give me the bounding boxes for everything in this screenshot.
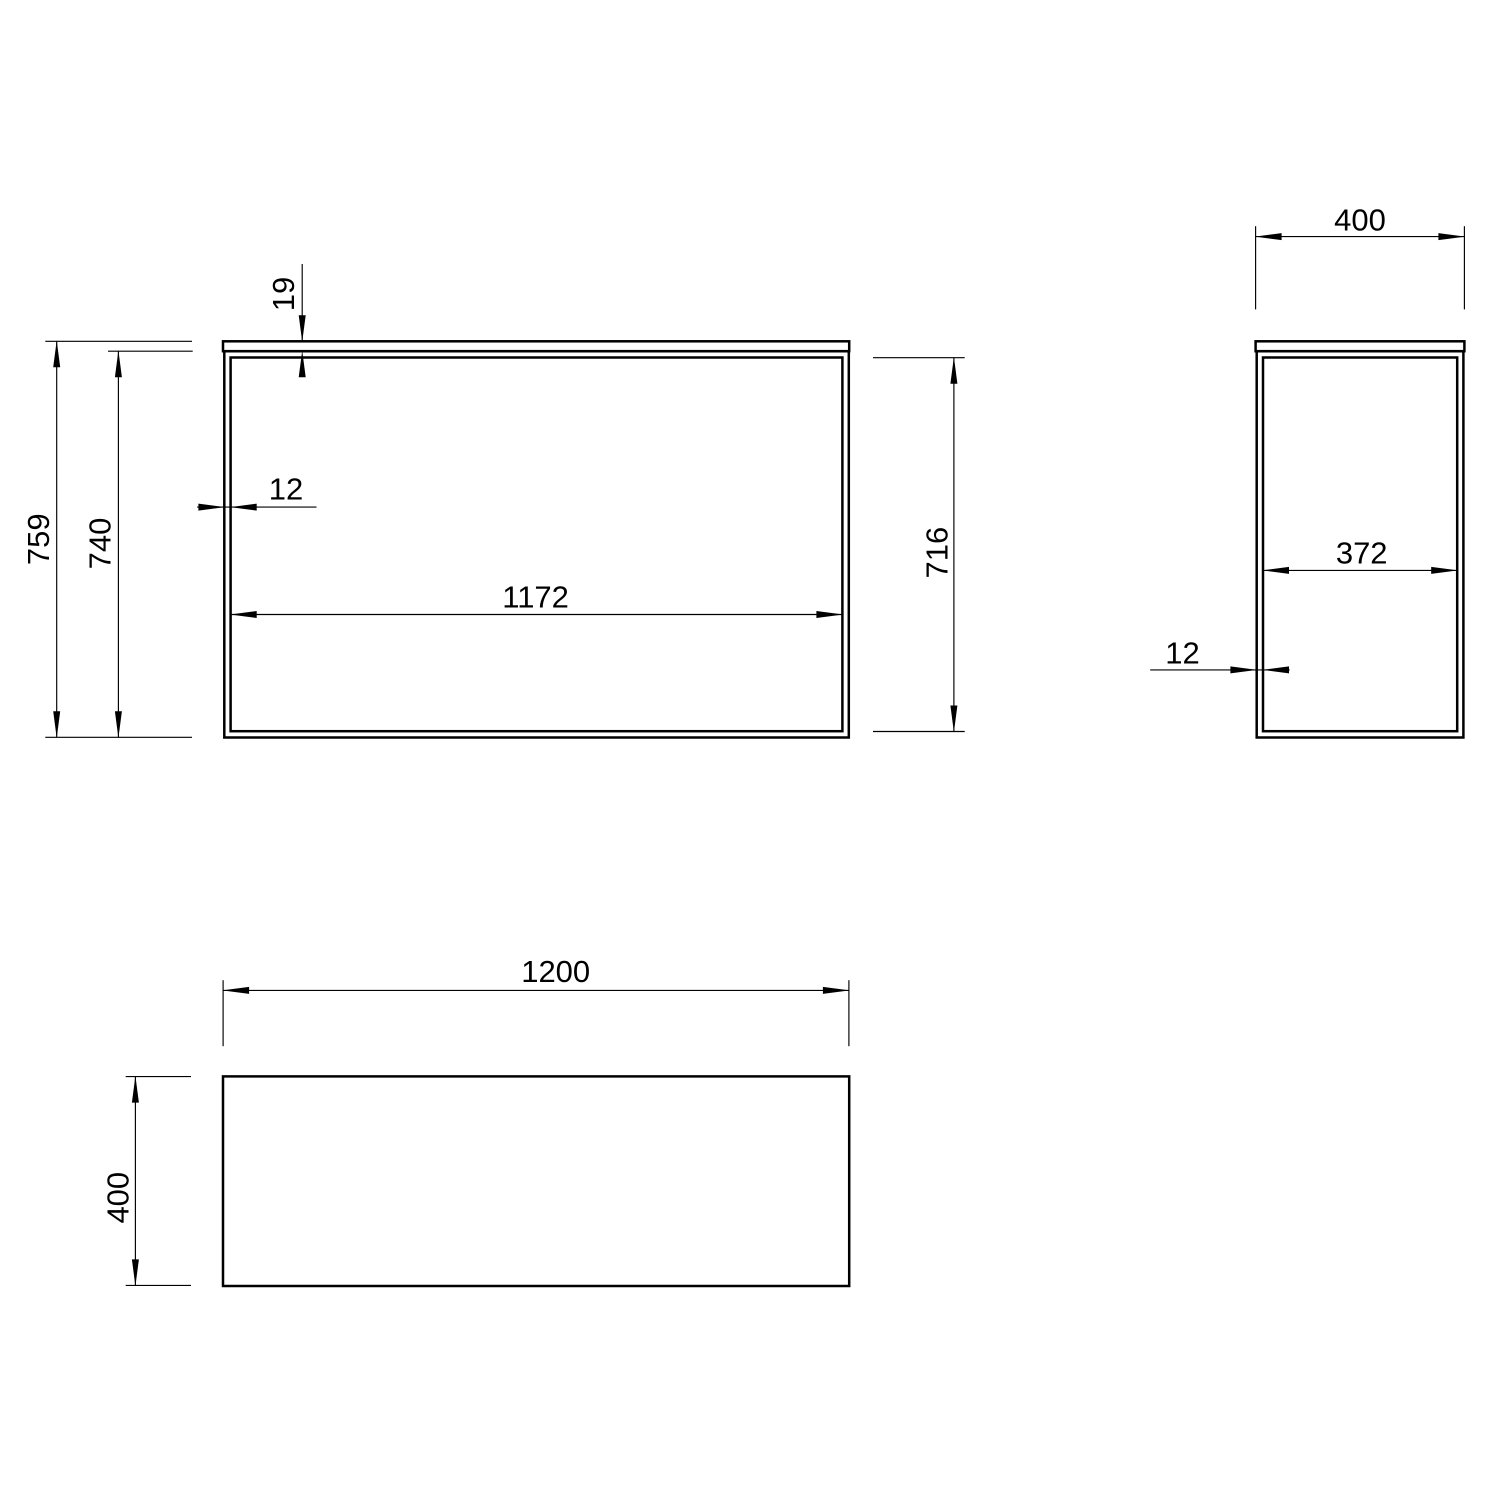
svg-text:400: 400: [1334, 202, 1386, 237]
svg-text:372: 372: [1336, 535, 1388, 570]
svg-text:1200: 1200: [521, 954, 590, 989]
svg-text:400: 400: [101, 1172, 136, 1224]
svg-text:12: 12: [1165, 636, 1199, 671]
svg-text:716: 716: [919, 527, 954, 579]
svg-text:759: 759: [21, 513, 56, 565]
svg-text:19: 19: [266, 277, 301, 311]
svg-text:12: 12: [269, 472, 303, 507]
svg-text:740: 740: [83, 518, 118, 570]
svg-text:1172: 1172: [502, 579, 569, 614]
